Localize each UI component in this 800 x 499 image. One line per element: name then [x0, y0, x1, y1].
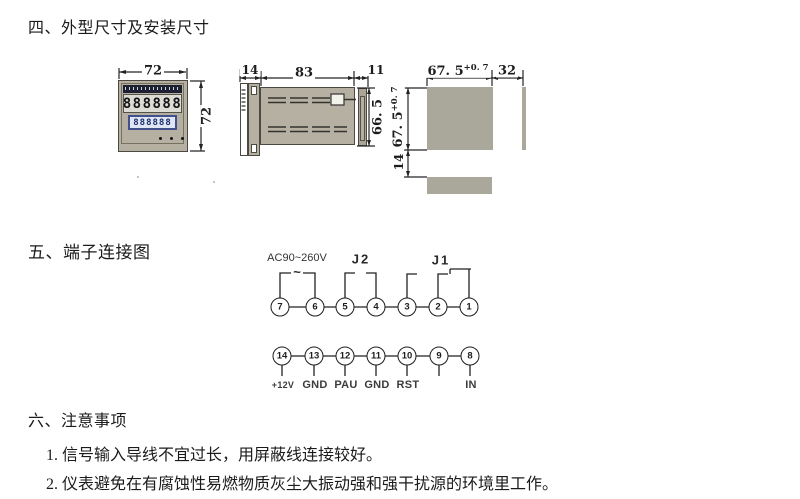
- mounting-clip-top: [251, 86, 257, 95]
- terminal-6: 6: [306, 298, 325, 317]
- terminal-3: 3: [398, 298, 417, 317]
- panel-key-dot: [170, 137, 173, 140]
- terminal-10: 10: [398, 347, 417, 366]
- terminal-8: 8: [461, 347, 480, 366]
- manual-page: 四、外型尺寸及安装尺寸 五、端子连接图 六、注意事项 1. 信号输入导线不宜过长…: [0, 0, 800, 499]
- note-item-1: 1. 信号输入导线不宜过长，用屏蔽线连接较好。: [46, 441, 382, 465]
- panel-cutout-square: [427, 87, 493, 150]
- terminal-5: 5: [336, 298, 355, 317]
- terminal-8-function: IN: [465, 379, 477, 391]
- side-view-body: [260, 87, 355, 145]
- upper-display: 888888: [123, 94, 182, 113]
- brand-strip: [123, 85, 182, 93]
- cutout-side-gap-dim: 32: [496, 65, 518, 78]
- terminal-1: 1: [460, 298, 479, 317]
- cutout-height-dim: 67. 5+0. 7: [391, 84, 405, 149]
- terminal-2: 2: [429, 298, 448, 317]
- terminal-11: 11: [367, 347, 386, 366]
- ac-tilde-symbol: ~: [292, 266, 302, 279]
- cutout-width-tolerance: +0. 7: [464, 63, 489, 73]
- side-view-bezel-ribs: [240, 83, 248, 156]
- scan-speck: [213, 181, 215, 183]
- section-notes-title: 六、注意事项: [28, 407, 127, 431]
- brand-strip-text-specks: [125, 87, 180, 90]
- lower-display: 888888: [128, 115, 177, 130]
- scan-speck: [137, 176, 139, 178]
- side-body-length-dim: 83: [293, 67, 315, 80]
- terminal-13-function: GND: [302, 379, 327, 391]
- terminal-14: 14: [273, 347, 292, 366]
- terminal-11-function: GND: [364, 379, 389, 391]
- cutout-height-tolerance: +0. 7: [390, 86, 400, 111]
- terminal-13: 13: [305, 347, 324, 366]
- panel-key-dot: [159, 137, 162, 140]
- relay-j1-label: J1: [432, 253, 450, 268]
- cutout-bottom-gap-dim: 14: [393, 152, 405, 173]
- cutout-width-value: 67. 5: [427, 64, 463, 79]
- cutout-width-dim: 67. 5+0. 7: [425, 64, 490, 78]
- section-terminals-title: 五、端子连接图: [28, 238, 151, 263]
- side-front-depth-dim: 14: [240, 64, 261, 76]
- relay-j2-label: J2: [352, 252, 370, 267]
- terminal-14-function: +12V: [272, 380, 294, 390]
- side-rear-depth-dim: 11: [366, 64, 387, 76]
- terminal-9: 9: [430, 347, 449, 366]
- panel-cutout-side-bar: [522, 87, 526, 150]
- power-range-label: AC90~260V: [267, 252, 327, 264]
- terminal-12: 12: [336, 347, 355, 366]
- j2-contact: [345, 273, 376, 299]
- front-height-dim: 72: [201, 105, 214, 127]
- section-dimensions-title: 四、外型尺寸及安装尺寸: [28, 14, 210, 38]
- j1-contact: [407, 269, 471, 299]
- panel-key-dot: [181, 137, 184, 140]
- rear-terminal-inner: [360, 96, 365, 141]
- cutout-height-value: 67. 5: [391, 111, 406, 147]
- terminal-7: 7: [271, 298, 290, 317]
- terminal-10-function: RST: [397, 379, 420, 391]
- note-item-2: 2. 仪表避免在有腐蚀性易燃物质灰尘大振动强和强干扰源的环境里工作。: [46, 470, 558, 494]
- terminal-12-function: PAU: [334, 379, 357, 391]
- panel-cutout-bottom-bar: [427, 177, 492, 194]
- side-height-dim: 66. 5: [372, 97, 385, 137]
- terminal-4: 4: [367, 298, 386, 317]
- mounting-clip-bottom: [251, 144, 257, 153]
- front-width-dim: 72: [142, 65, 164, 78]
